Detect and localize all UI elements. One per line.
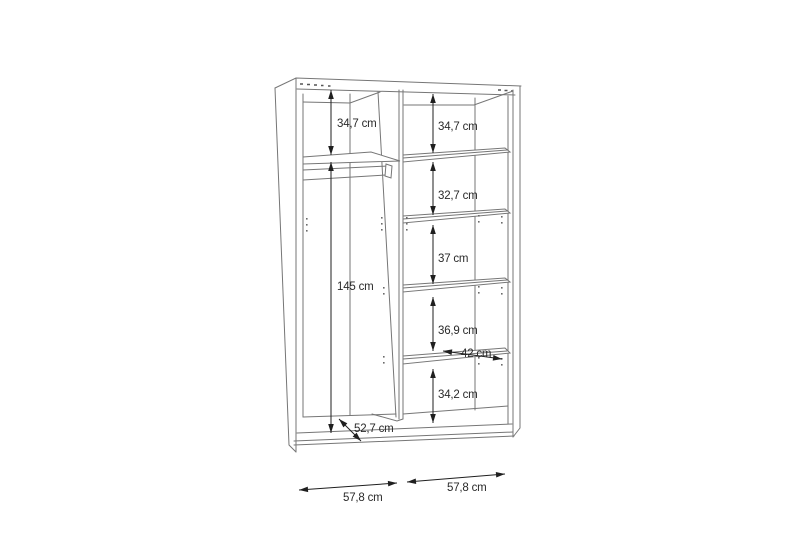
top-edge	[275, 78, 521, 88]
label-right-section-3: 37 cm	[438, 253, 468, 265]
floor-front-edge	[297, 424, 512, 433]
label-width-right: 57,8 cm	[447, 482, 487, 494]
floor-back-edge-right	[403, 406, 508, 414]
label-right-section-2: 32,7 cm	[438, 190, 478, 202]
plinth-bottom-edge	[294, 436, 514, 445]
right-panel-outer-edge	[513, 86, 520, 437]
right-shelf-1	[403, 148, 510, 162]
hanging-rail-bottom	[303, 175, 386, 180]
label-shelf-depth: 42 cm	[461, 348, 491, 360]
divider-left-face-edge	[378, 92, 396, 417]
divider-bottom-edge	[372, 414, 403, 421]
label-right-section-4: 36,9 cm	[438, 325, 478, 337]
label-right-section-5: 34,2 cm	[438, 389, 478, 401]
dimension-labels: 34,7 cm 145 cm 34,7 cm 32,7 cm 37 cm 36,…	[337, 118, 491, 504]
hanging-rail-end-bracket	[385, 164, 392, 178]
label-right-section-1: 34,7 cm	[438, 121, 478, 133]
label-left-top-shelf-gap: 34,7 cm	[337, 118, 377, 130]
label-left-hanging-height: 145 cm	[337, 281, 374, 293]
dim-arrow-width-left	[299, 483, 397, 490]
top-band-lower-edge	[297, 89, 515, 95]
right-shelf-3	[403, 278, 510, 292]
plinth-top-edge	[294, 432, 513, 441]
right-shelf-4	[403, 348, 510, 364]
left-top-shelf	[303, 152, 400, 164]
wardrobe-carcass	[275, 78, 521, 452]
hanging-rail-top	[303, 166, 388, 170]
wardrobe-dimension-diagram: 34,7 cm 145 cm 34,7 cm 32,7 cm 37 cm 36,…	[0, 0, 800, 533]
label-width-left: 57,8 cm	[343, 492, 383, 504]
wardrobe-diagram-svg: 34,7 cm 145 cm 34,7 cm 32,7 cm 37 cm 36,…	[0, 0, 800, 533]
middle-divider	[372, 90, 403, 421]
label-left-depth: 52,7 cm	[354, 423, 394, 435]
dim-arrow-width-right	[407, 474, 505, 482]
ceiling-left-compartment	[303, 92, 380, 103]
right-shelf-2	[403, 209, 510, 223]
left-panel-outer-edge	[275, 88, 296, 452]
shelves	[303, 148, 510, 364]
